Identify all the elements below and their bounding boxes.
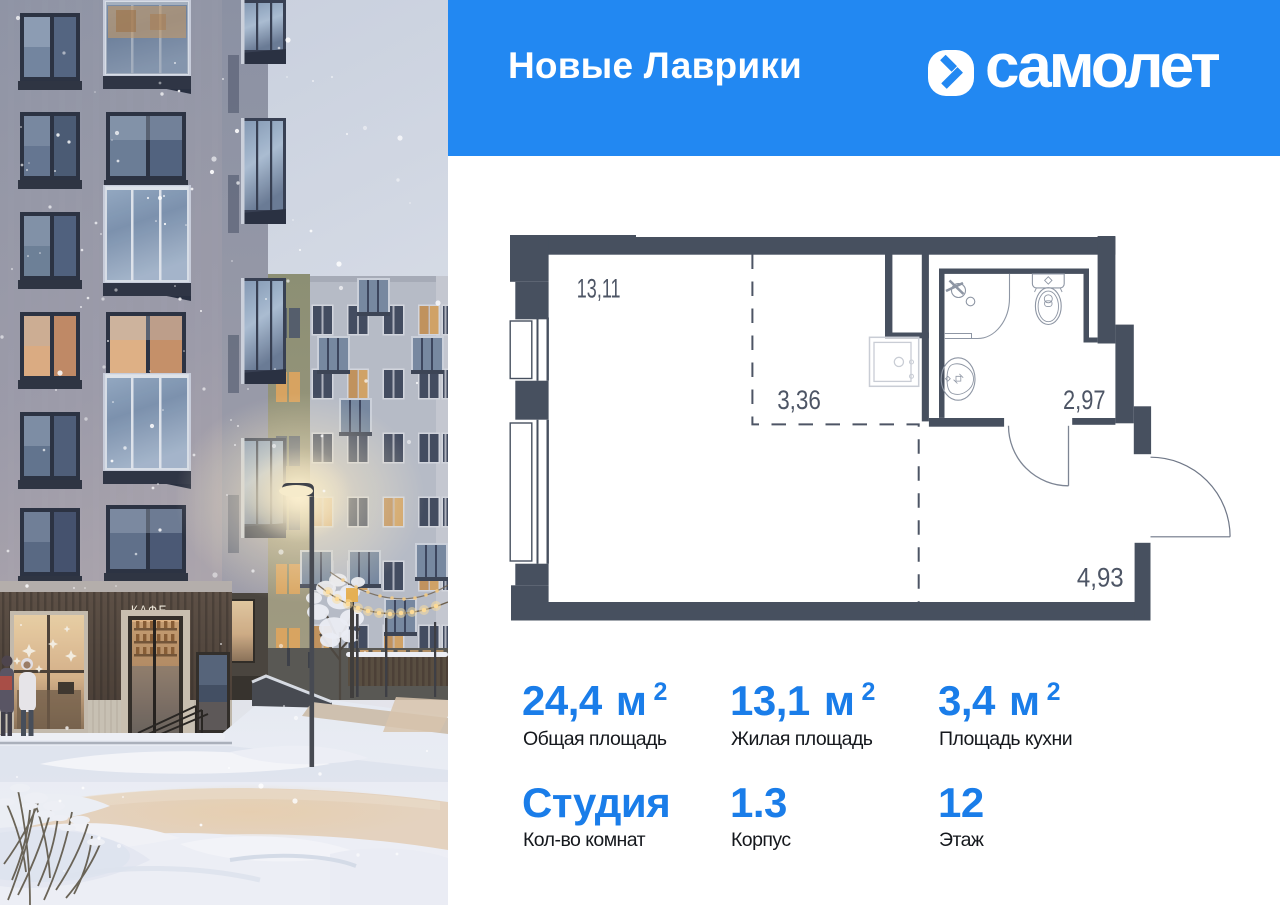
svg-text:2,97: 2,97 [1063, 385, 1106, 415]
svg-text:4,93: 4,93 [1077, 563, 1124, 593]
svg-text:3,36: 3,36 [777, 385, 821, 415]
svg-text:13,11: 13,11 [577, 273, 621, 303]
